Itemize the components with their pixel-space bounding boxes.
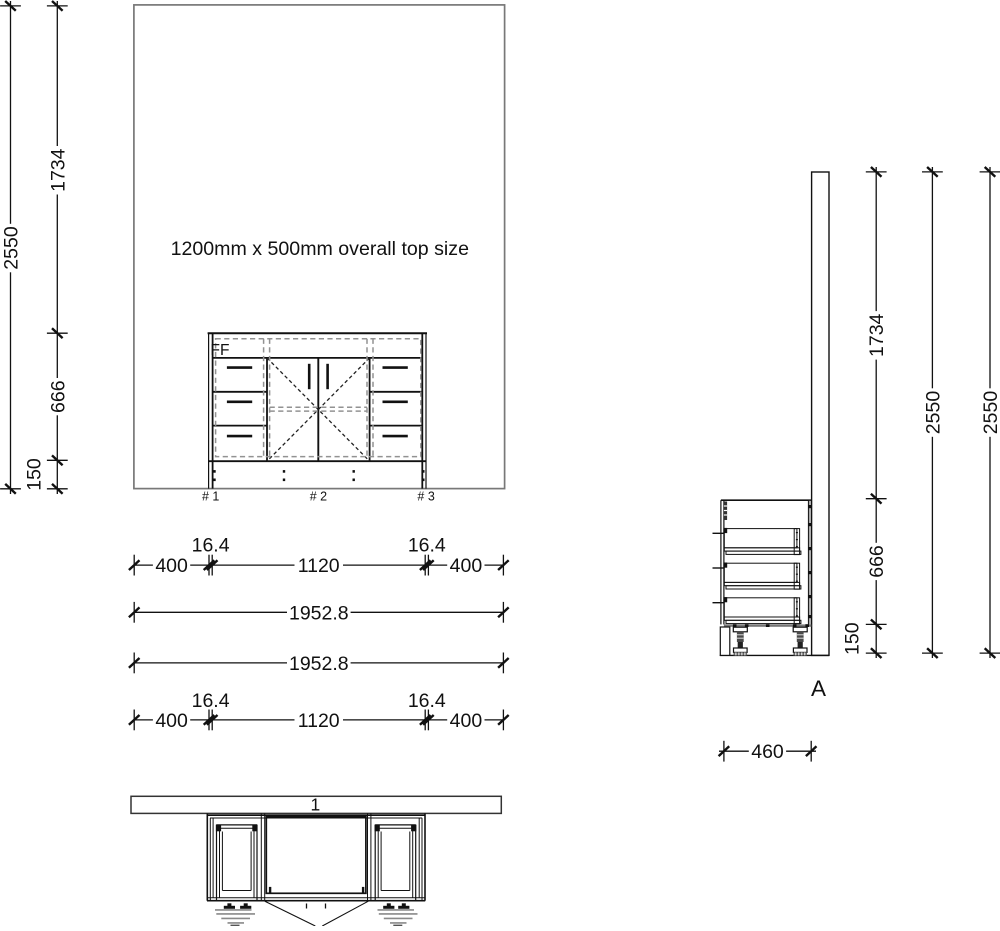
svg-text:400: 400 bbox=[155, 555, 188, 577]
svg-text:666: 666 bbox=[866, 545, 888, 578]
svg-text:400: 400 bbox=[450, 555, 483, 577]
svg-text:16.4: 16.4 bbox=[192, 535, 230, 557]
svg-text:400: 400 bbox=[450, 710, 483, 732]
svg-text:1952.8: 1952.8 bbox=[289, 653, 349, 675]
svg-text:1120: 1120 bbox=[298, 555, 340, 577]
svg-text:666: 666 bbox=[47, 380, 69, 413]
svg-text:# 2: # 2 bbox=[310, 490, 327, 504]
svg-text:FF: FF bbox=[211, 342, 230, 359]
svg-text:1: 1 bbox=[311, 795, 321, 815]
svg-text:A: A bbox=[811, 676, 826, 701]
svg-text:400: 400 bbox=[155, 710, 188, 732]
svg-text:460: 460 bbox=[751, 741, 784, 763]
svg-text:150: 150 bbox=[842, 622, 864, 655]
svg-text:2550: 2550 bbox=[980, 391, 1000, 435]
svg-text:# 1: # 1 bbox=[202, 490, 219, 504]
svg-text:1734: 1734 bbox=[47, 148, 69, 192]
svg-text:1200mm x 500mm overall top siz: 1200mm x 500mm overall top size bbox=[171, 238, 469, 260]
svg-text:150: 150 bbox=[23, 458, 45, 491]
svg-text:1734: 1734 bbox=[866, 313, 888, 357]
svg-text:16.4: 16.4 bbox=[192, 690, 230, 712]
svg-text:1120: 1120 bbox=[298, 710, 340, 732]
svg-text:1952.8: 1952.8 bbox=[289, 602, 349, 624]
svg-text:# 3: # 3 bbox=[417, 490, 434, 504]
svg-text:16.4: 16.4 bbox=[408, 690, 446, 712]
svg-text:2550: 2550 bbox=[1, 226, 23, 270]
svg-text:16.4: 16.4 bbox=[408, 535, 446, 557]
svg-text:2550: 2550 bbox=[922, 391, 944, 435]
